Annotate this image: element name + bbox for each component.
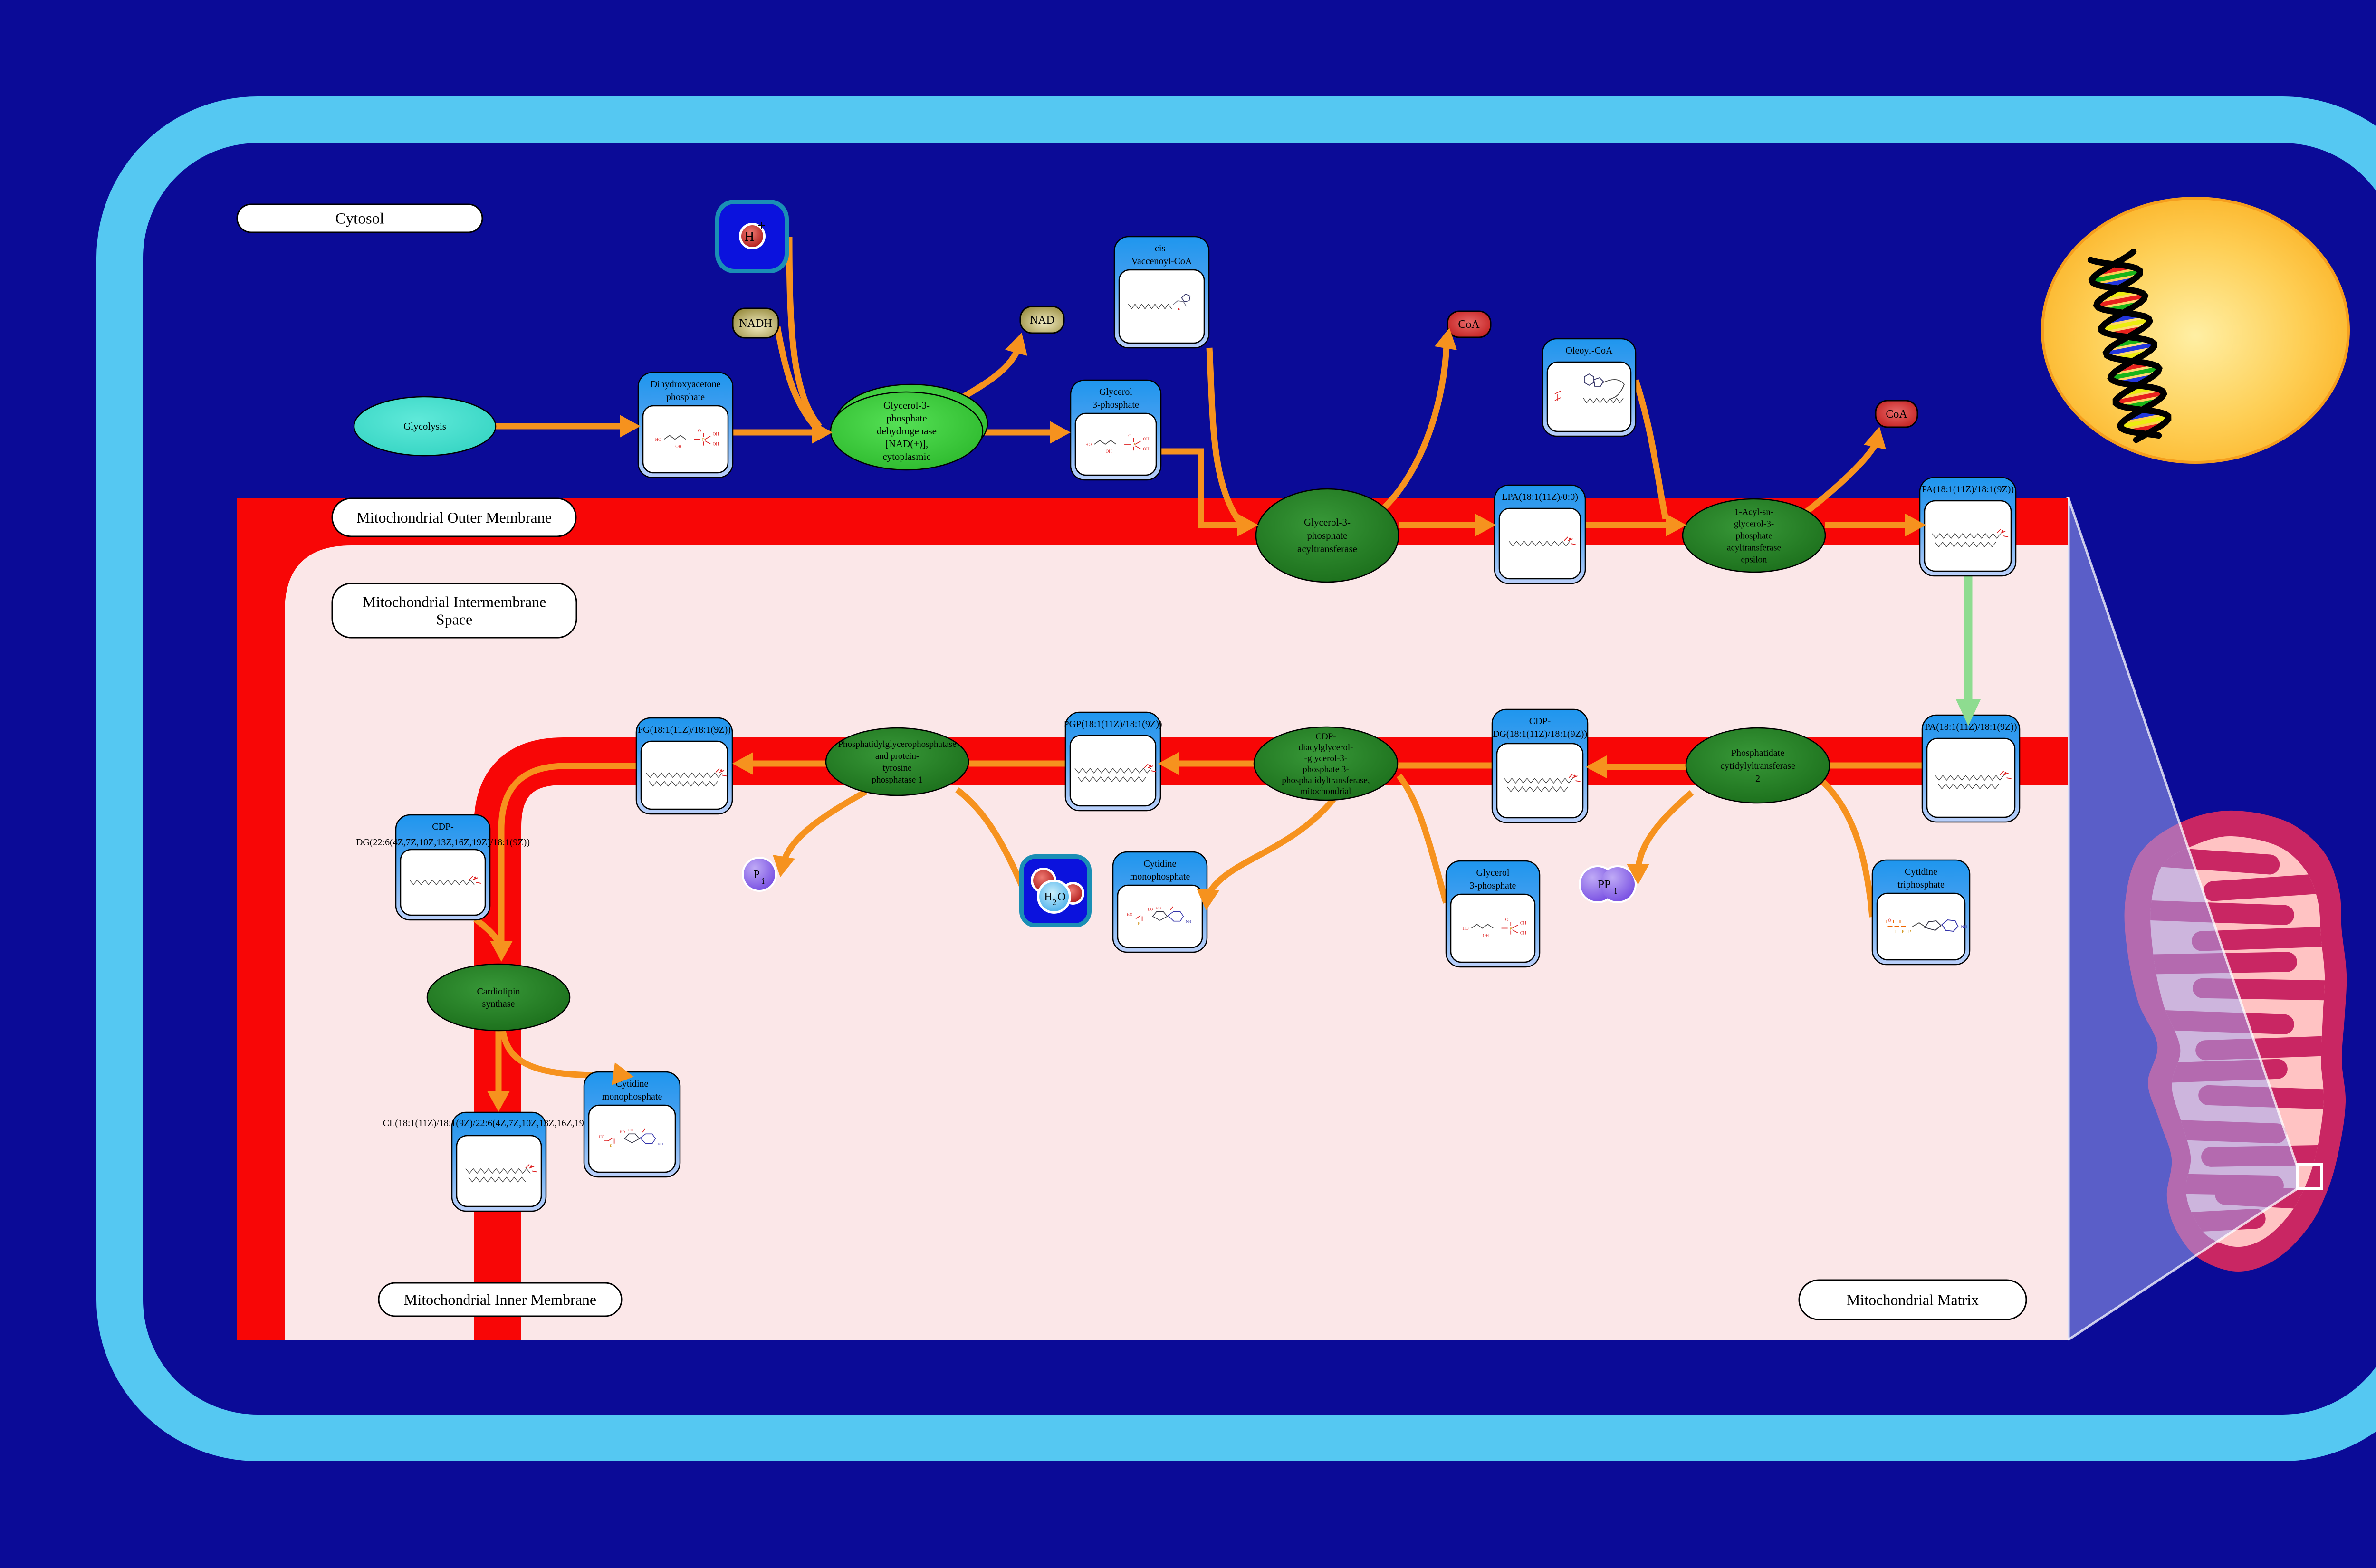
svg-text:3-phosphate: 3-phosphate [1470,880,1516,891]
svg-text:O: O [1888,918,1891,923]
svg-text:OH: OH [1483,933,1489,938]
svg-text:cis-: cis- [1155,243,1169,254]
svg-text:P: P [702,438,705,443]
svg-text:O: O [1505,918,1509,922]
svg-text:and protein-: and protein- [875,751,919,761]
svg-text:P: P [610,1144,612,1149]
svg-text:i: i [762,876,765,886]
svg-text:2: 2 [1755,774,1760,784]
svg-text:Vaccenoyl-CoA: Vaccenoyl-CoA [1131,256,1192,267]
svg-text:O: O [1057,891,1065,903]
svg-text:tyrosine: tyrosine [882,763,911,773]
svg-text:NAD: NAD [1030,314,1054,326]
svg-text:synthase: synthase [482,999,515,1009]
svg-text:Cardiolipin: Cardiolipin [477,986,520,997]
svg-text:NADH: NADH [739,317,772,330]
svg-text:i: i [1614,886,1617,896]
svg-text:H: H [745,229,754,244]
svg-text:Mitochondrial Outer Membrane: Mitochondrial Outer Membrane [356,509,552,526]
svg-text:CDP-: CDP- [1315,732,1336,742]
svg-text:CoA: CoA [1458,318,1480,331]
svg-text:Glycerol-3-: Glycerol-3- [883,400,930,411]
svg-text:HO: HO [655,437,661,442]
svg-text:P: P [1895,929,1898,935]
svg-text:Cytidine: Cytidine [1144,859,1177,869]
svg-text:Mitochondrial Matrix: Mitochondrial Matrix [1847,1291,1979,1308]
svg-text:monophosphate: monophosphate [1130,871,1190,882]
svg-text:PA(18:1(11Z)/18:1(9Z)): PA(18:1(11Z)/18:1(9Z)) [1925,722,2017,732]
svg-text:[NAD(+)],: [NAD(+)], [885,438,929,449]
svg-text:phosphate: phosphate [666,392,705,402]
svg-text:Cytidine: Cytidine [1905,867,1937,877]
svg-text:DG(22:6(4Z,7Z,10Z,13Z,16Z,19Z): DG(22:6(4Z,7Z,10Z,13Z,16Z,19Z)/18:1(9Z)) [356,837,530,848]
svg-text:OH: OH [1106,449,1112,454]
svg-text:Glycerol: Glycerol [1476,868,1510,878]
svg-text:Space: Space [436,611,472,628]
svg-text:phosphate: phosphate [1307,530,1347,541]
svg-text:OH: OH [1143,437,1149,441]
svg-text:LPA(18:1(11Z)/0:0): LPA(18:1(11Z)/0:0) [1502,492,1578,502]
svg-text:CDP-: CDP- [432,822,454,832]
svg-text:1-Acyl-sn-: 1-Acyl-sn- [1734,507,1773,517]
svg-text:3-phosphate: 3-phosphate [1092,400,1139,410]
svg-text:epsilon: epsilon [1741,555,1767,564]
svg-text:Oleoyl-CoA: Oleoyl-CoA [1566,345,1613,356]
svg-text:DG(18:1(11Z)/18:1(9Z)): DG(18:1(11Z)/18:1(9Z)) [1493,729,1587,739]
svg-text:CoA: CoA [1886,408,1907,421]
svg-text:cytoplasmic: cytoplasmic [882,451,930,462]
svg-text:PG(18:1(11Z)/18:1(9Z)): PG(18:1(11Z)/18:1(9Z)) [638,725,731,735]
svg-text:HO: HO [1463,926,1469,931]
svg-text:phosphate 3-: phosphate 3- [1303,765,1349,774]
svg-text:Dihydroxyacetone: Dihydroxyacetone [651,379,721,390]
svg-text:PGP(18:1(11Z)/18:1(9Z)): PGP(18:1(11Z)/18:1(9Z)) [1063,719,1162,729]
svg-text:HO: HO [1148,908,1153,912]
svg-text:-glycerol-3-: -glycerol-3- [1304,754,1348,764]
svg-text:monophosphate: monophosphate [602,1091,662,1102]
svg-text:OH: OH [1520,920,1526,925]
svg-text:CDP-: CDP- [1529,716,1551,727]
svg-text:P: P [1138,922,1140,927]
svg-text:OH: OH [713,431,719,436]
svg-text:cytidylyltransferase: cytidylyltransferase [1720,761,1795,771]
svg-text:P: P [1908,929,1911,935]
svg-text:OH: OH [713,442,719,447]
svg-text:acyltransferase: acyltransferase [1297,543,1357,555]
svg-text:O: O [698,429,701,433]
svg-text:OH: OH [675,444,681,449]
svg-text:OH: OH [1143,447,1149,451]
svg-text:Glycolysis: Glycolysis [403,421,446,432]
svg-text:OH: OH [1520,931,1526,936]
svg-text:diacylglycerol-: diacylglycerol- [1298,743,1353,753]
svg-text:Phosphatidate: Phosphatidate [1731,748,1784,758]
svg-text:P: P [753,869,759,881]
svg-text:HO: HO [620,1130,625,1134]
svg-text:P: P [1132,442,1135,448]
svg-text:H: H [1044,891,1052,903]
svg-text:P: P [1509,927,1512,932]
svg-text:phosphate: phosphate [886,412,927,424]
svg-text:PP: PP [1598,879,1611,891]
svg-text:Mitochondrial Inner Membrane: Mitochondrial Inner Membrane [404,1291,596,1308]
svg-text:O: O [1128,433,1131,438]
svg-text:acyltransferase: acyltransferase [1727,543,1781,553]
svg-text:P: P [1902,929,1905,935]
svg-text:phosphatase 1: phosphatase 1 [872,775,922,785]
svg-text:Phosphatidylglycerophosphatase: Phosphatidylglycerophosphatase [838,739,956,749]
svg-text:phosphate: phosphate [1735,531,1772,541]
svg-text:Glycerol-3-: Glycerol-3- [1304,516,1351,528]
svg-text:NH: NH [1961,925,1967,929]
svg-text:NH: NH [658,1142,663,1146]
svg-text:Mitochondrial Intermembrane: Mitochondrial Intermembrane [363,593,546,610]
svg-text:phosphatidyltransferase,: phosphatidyltransferase, [1282,775,1370,785]
svg-text:Glycerol: Glycerol [1099,387,1132,397]
svg-text:OH: OH [628,1128,633,1132]
svg-text:+: + [757,218,765,233]
svg-text:Cytosol: Cytosol [335,210,384,228]
svg-text:HO: HO [1127,912,1132,917]
svg-text:mitochondrial: mitochondrial [1301,786,1351,796]
svg-text:CL(18:1(11Z)/18:1(9Z)/22:6(4Z,: CL(18:1(11Z)/18:1(9Z)/22:6(4Z,7Z,10Z,13Z… [383,1118,596,1128]
svg-text:NH: NH [1186,919,1191,924]
svg-text:dehydrogenase: dehydrogenase [877,425,937,437]
svg-text:glycerol-3-: glycerol-3- [1734,519,1774,529]
svg-text:OH: OH [1156,906,1161,910]
svg-text:HO: HO [599,1134,604,1139]
svg-text:PA(18:1(11Z)/18:1(9Z)): PA(18:1(11Z)/18:1(9Z)) [1922,484,2014,495]
svg-text:triphosphate: triphosphate [1897,880,1945,890]
svg-text:2: 2 [1053,898,1057,907]
svg-text:HO: HO [1085,442,1092,447]
